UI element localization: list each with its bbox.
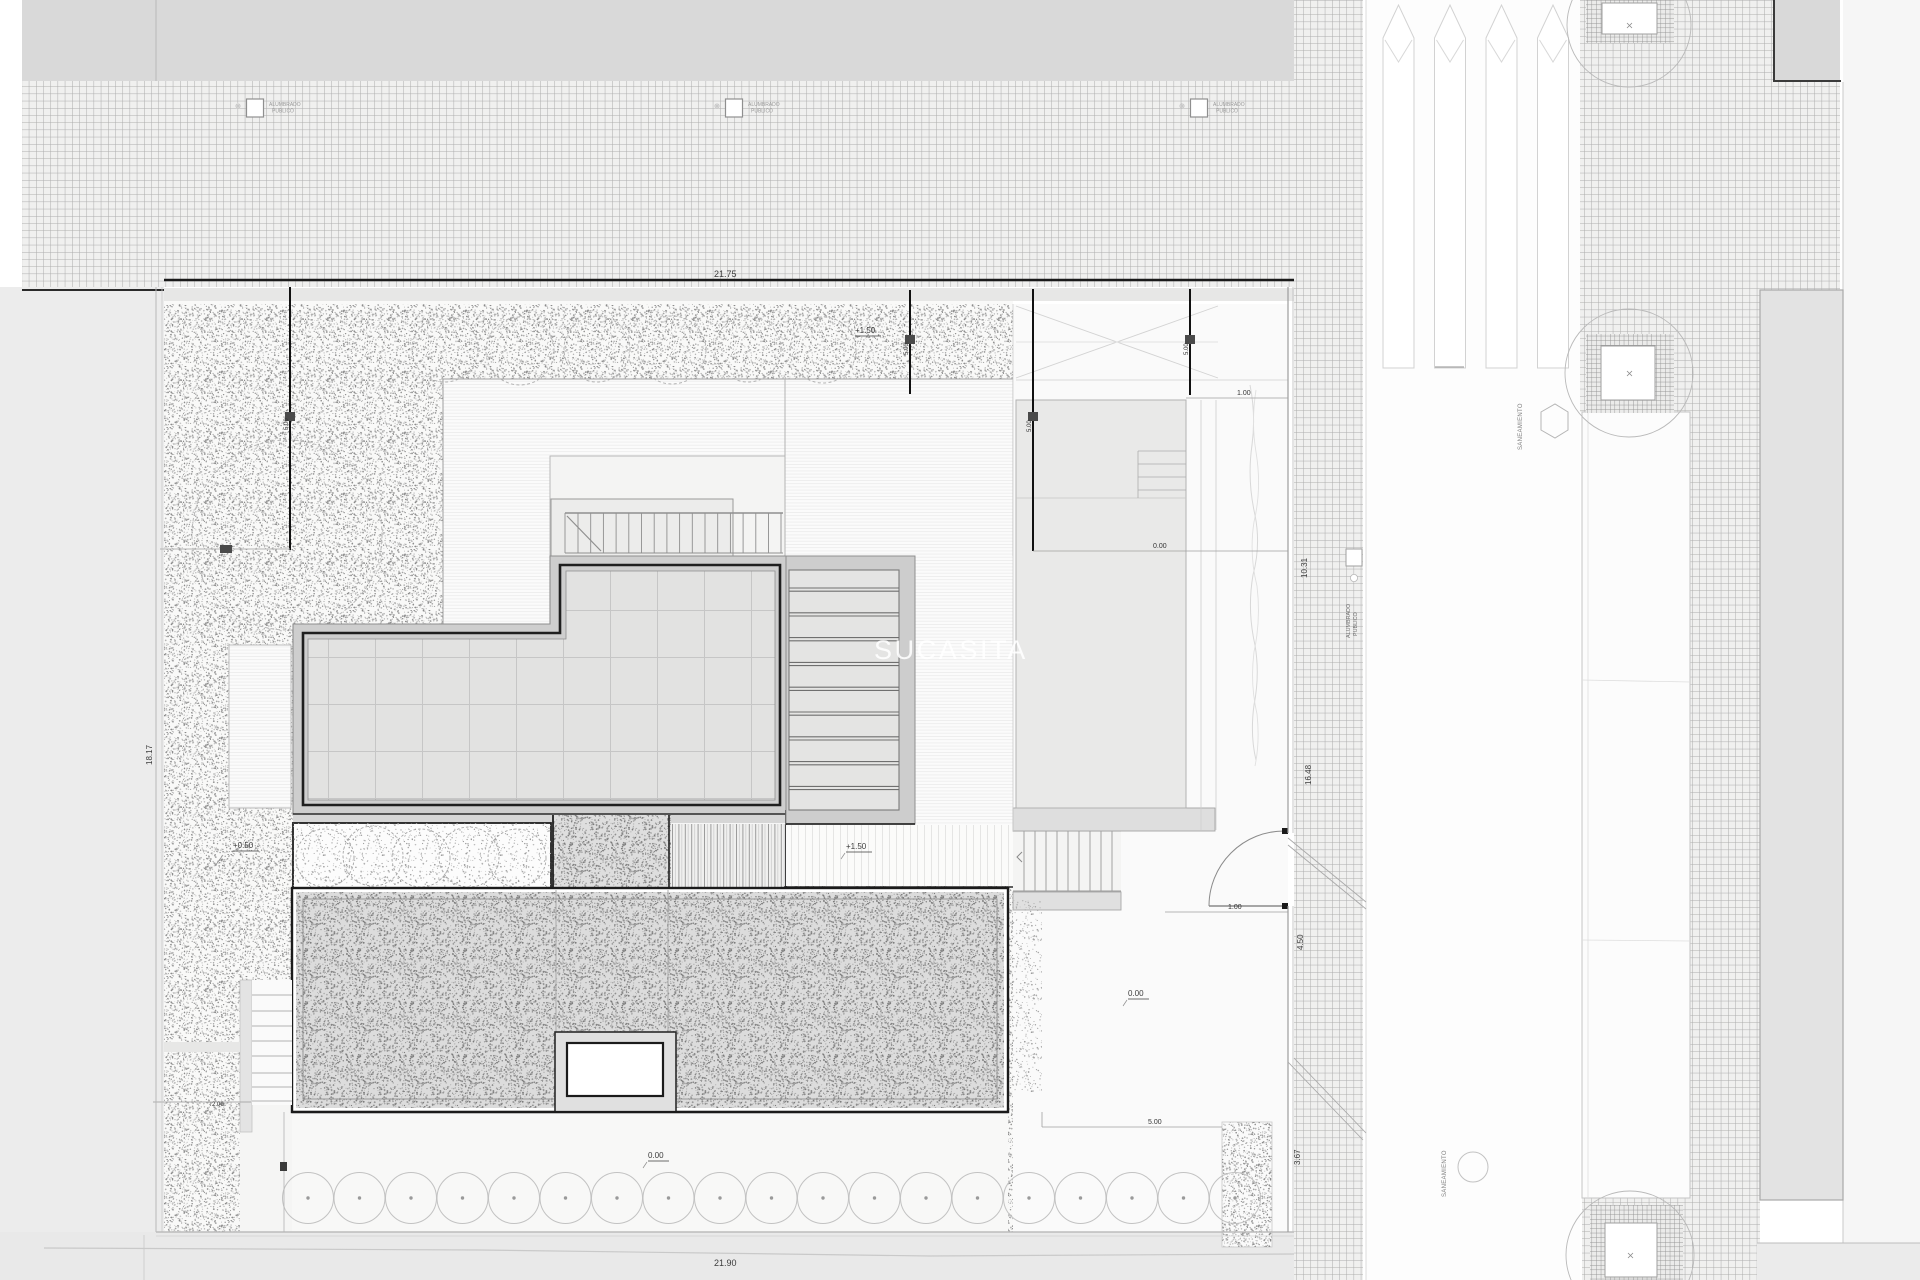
- svg-text:4.50: 4.50: [1296, 934, 1305, 950]
- svg-text:ALUMBRADO: ALUMBRADO: [1213, 102, 1245, 108]
- svg-text:5.00: 5.00: [284, 418, 290, 430]
- svg-text:PUBLICO: PUBLICO: [1353, 612, 1359, 636]
- svg-text:SUCASITA: SUCASITA: [874, 635, 1028, 665]
- svg-text:5.00: 5.00: [1184, 343, 1190, 355]
- svg-text:+1.50: +1.50: [846, 842, 867, 851]
- svg-text:1.00: 1.00: [1228, 904, 1242, 911]
- svg-text:ALUMBRADO: ALUMBRADO: [269, 102, 301, 108]
- svg-text:ALUMBRADO: ALUMBRADO: [748, 102, 780, 108]
- svg-text:0.00: 0.00: [1153, 543, 1167, 550]
- svg-text:5.00: 5.00: [1148, 1119, 1162, 1126]
- svg-text:PUBLICO: PUBLICO: [1216, 109, 1238, 115]
- svg-text:+0.50: +0.50: [233, 841, 254, 850]
- svg-text:1.00: 1.00: [1237, 390, 1251, 397]
- svg-text:ALUMBRADO: ALUMBRADO: [1346, 604, 1352, 638]
- svg-text:5.00: 5.00: [904, 343, 910, 355]
- svg-text:PUBLICO: PUBLICO: [272, 109, 294, 115]
- svg-text:SANEAMIENTO: SANEAMIENTO: [1442, 1150, 1448, 1197]
- svg-text:PUBLICO: PUBLICO: [751, 109, 773, 115]
- svg-text:21.90: 21.90: [714, 1258, 737, 1268]
- svg-text:+1.50: +1.50: [855, 326, 876, 335]
- svg-text:0.00: 0.00: [648, 1151, 664, 1160]
- svg-text:5.00: 5.00: [1027, 420, 1033, 432]
- svg-text:SANEAMIENTO: SANEAMIENTO: [1518, 403, 1524, 450]
- svg-text:0.00: 0.00: [1128, 989, 1144, 998]
- svg-text:21.75: 21.75: [714, 269, 737, 279]
- svg-text:18.17: 18.17: [145, 744, 154, 765]
- svg-text:2.00: 2.00: [212, 1102, 224, 1108]
- svg-text:3.67: 3.67: [1293, 1149, 1302, 1165]
- svg-text:10.31: 10.31: [1300, 557, 1309, 578]
- svg-text:16.48: 16.48: [1304, 764, 1313, 785]
